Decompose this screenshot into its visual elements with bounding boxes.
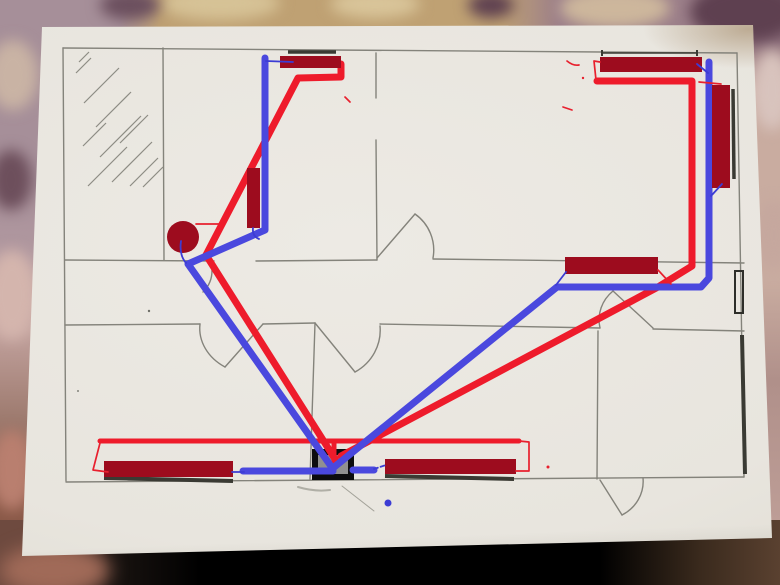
photo-scene <box>0 0 780 585</box>
floor-plan-drawing <box>0 0 780 585</box>
blue-dot-mark <box>385 500 392 507</box>
radiator-right-wall <box>712 85 730 188</box>
radiator-bottom-left <box>104 461 233 477</box>
radiator-small-vertical <box>247 168 260 228</box>
radiator-bottom-right <box>385 459 516 474</box>
radiator-middle-right <box>565 257 658 274</box>
hatch-area <box>76 52 163 187</box>
radiator-top-right <box>600 57 702 72</box>
pump-circle <box>167 221 199 253</box>
